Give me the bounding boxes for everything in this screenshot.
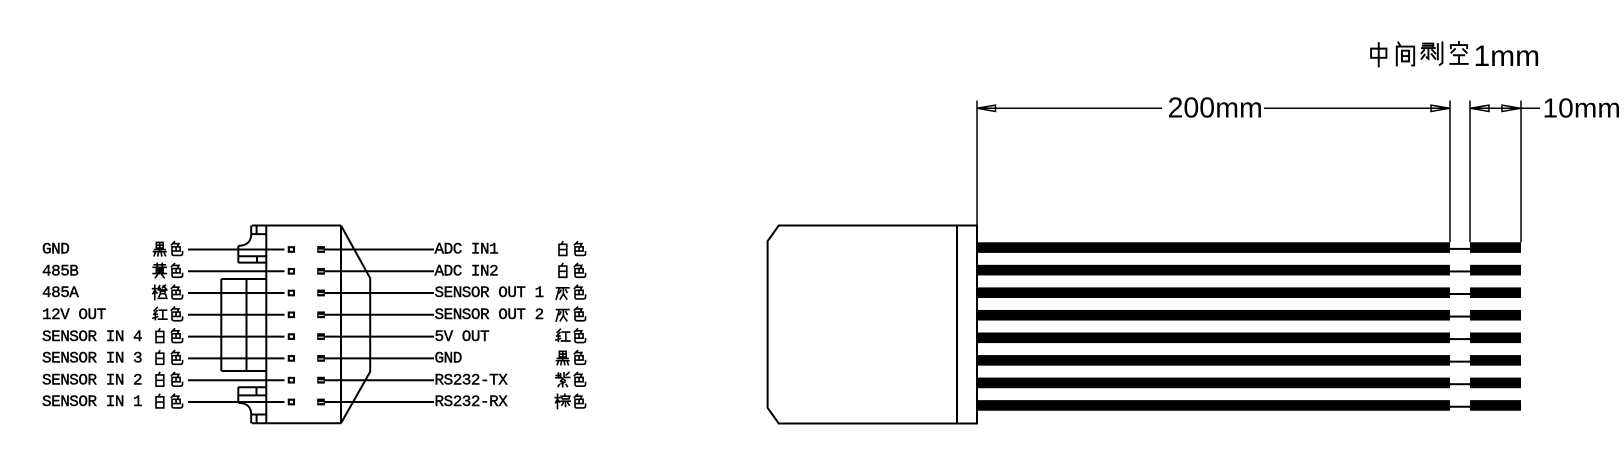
svg-text:GND: GND (42, 241, 69, 259)
svg-text:10mm: 10mm (1543, 91, 1621, 123)
svg-text:SENSOR IN 4: SENSOR IN 4 (42, 328, 142, 346)
svg-text:ADC IN2: ADC IN2 (435, 263, 499, 281)
svg-text:200mm: 200mm (1168, 92, 1263, 124)
svg-text:1mm: 1mm (1474, 40, 1541, 73)
svg-text:5V OUT: 5V OUT (435, 328, 490, 346)
svg-text:GND: GND (435, 350, 462, 368)
svg-text:SENSOR IN 1: SENSOR IN 1 (42, 393, 142, 411)
svg-text:SENSOR IN 3: SENSOR IN 3 (42, 350, 142, 368)
svg-text:RS232-RX: RS232-RX (435, 393, 509, 411)
svg-text:485A: 485A (42, 284, 79, 302)
svg-text:485B: 485B (42, 263, 78, 281)
svg-text:ADC IN1: ADC IN1 (435, 241, 499, 259)
svg-text:12V OUT: 12V OUT (42, 306, 106, 324)
svg-text:SENSOR IN 2: SENSOR IN 2 (42, 371, 142, 389)
svg-text:RS232-TX: RS232-TX (435, 371, 509, 389)
svg-text:SENSOR OUT 1: SENSOR OUT 1 (435, 284, 544, 302)
svg-text:SENSOR OUT 2: SENSOR OUT 2 (435, 306, 544, 324)
